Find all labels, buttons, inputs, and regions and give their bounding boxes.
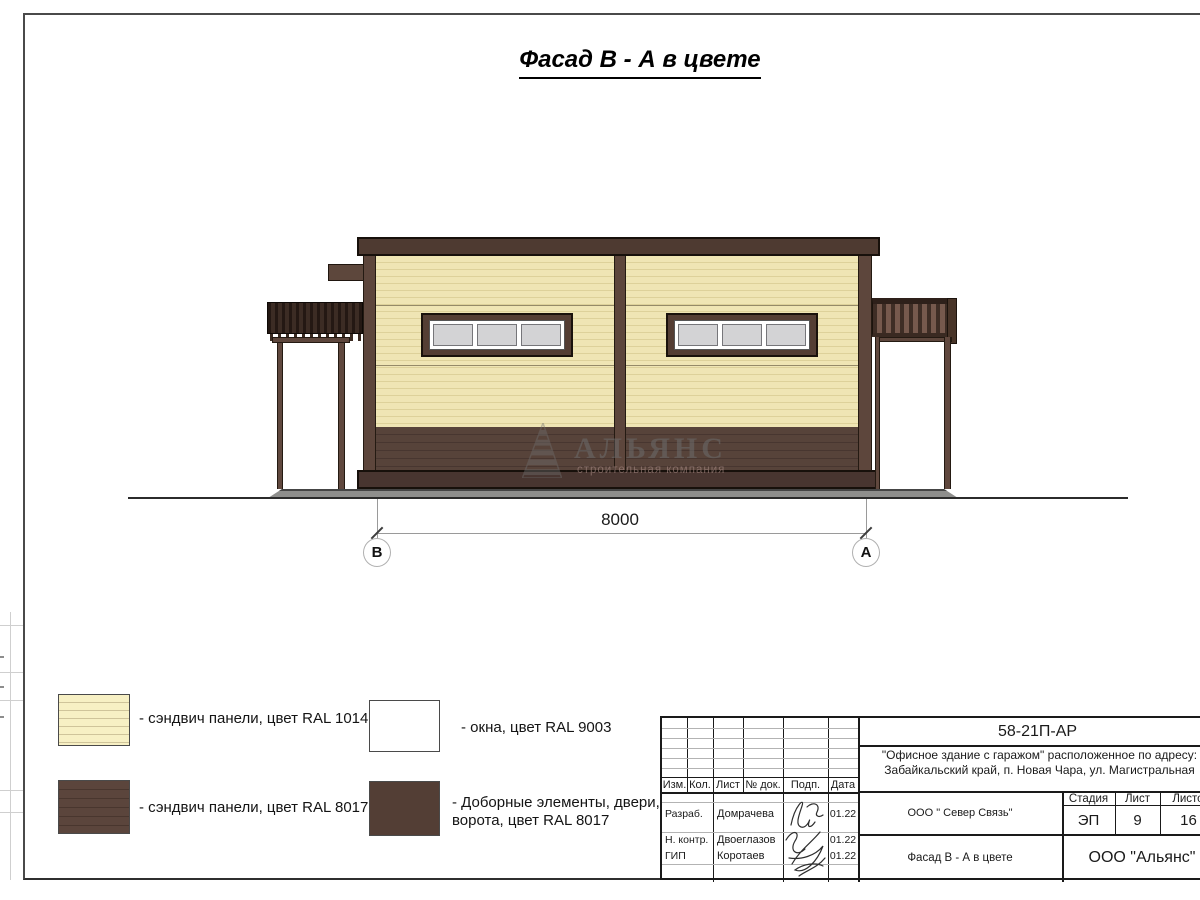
page-title: Фасад В - А в цвете	[350, 46, 930, 79]
tb-name: Домрачева	[717, 807, 783, 821]
project-address: "Офисное здание с гаражом" расположенное…	[862, 748, 1200, 778]
canopy-left-roof	[267, 302, 363, 334]
tb-role: Н. контр.	[665, 833, 713, 847]
corner-trim-left	[363, 256, 376, 470]
watermark-subtitle: строительная компания	[577, 464, 725, 476]
window-pane	[521, 324, 561, 346]
canopy-left-post	[277, 343, 283, 489]
tb-name: Двоеглазов	[717, 833, 783, 847]
canopy-right-beam	[875, 337, 952, 342]
tb-role: Разраб.	[665, 807, 713, 821]
legend-swatch-ral9003	[369, 700, 440, 752]
margin-line	[0, 700, 23, 701]
company-name: ООО "Альянс"	[1062, 834, 1200, 882]
stage-label: Стадия	[1062, 792, 1115, 805]
sheets-total: 16	[1160, 806, 1200, 834]
roof-fascia-overhang	[328, 264, 365, 281]
legend-swatch-ral8017	[58, 780, 130, 834]
legend-label: - окна, цвет RAL 9003	[461, 719, 611, 736]
window-left-frame	[429, 320, 565, 350]
margin-tick	[0, 686, 4, 688]
dimension-label: 8000	[560, 510, 680, 530]
tb-header-ndok: № док.	[743, 778, 783, 792]
sheets-label: Листов	[1160, 792, 1200, 805]
canopy-right-roof	[872, 298, 957, 337]
legend-label: - Доборные элементы, двери, ворота, цвет…	[452, 794, 660, 830]
watermark-title: АЛЬЯНС	[574, 432, 727, 466]
margin-line	[0, 790, 23, 791]
contractor-name: ООО " Север Связь"	[858, 791, 1062, 834]
sheet-label: Лист	[1115, 792, 1160, 805]
window-left	[421, 313, 573, 357]
margin-line	[0, 672, 23, 673]
window-pane	[678, 324, 718, 346]
window-pane	[722, 324, 762, 346]
canopy-right-post	[875, 337, 880, 489]
corner-trim-right	[858, 256, 872, 470]
doc-number: 58-21П-АР	[858, 720, 1200, 744]
window-pane	[433, 324, 473, 346]
project-address-line1: "Офисное здание с гаражом" расположенное…	[862, 748, 1200, 763]
legend-label-line2: ворота, цвет RAL 8017	[452, 812, 660, 830]
tb-role: ГИП	[665, 849, 713, 863]
window-pane	[766, 324, 806, 346]
axis-marker-a: А	[852, 538, 880, 567]
tb-date: 01.22	[828, 833, 858, 847]
tb-name: Коротаев	[717, 849, 783, 863]
axis-marker-a-label: А	[861, 544, 872, 561]
axis-marker-b: В	[363, 538, 391, 567]
margin-line	[0, 625, 23, 626]
tb-date: 01.22	[828, 807, 858, 821]
canopy-right-post	[944, 337, 951, 489]
margin-tick	[0, 716, 4, 718]
stage-value: ЭП	[1062, 806, 1115, 834]
legend-label-line1: - Доборные элементы, двери,	[452, 794, 660, 812]
legend-swatch-ral1014	[58, 694, 130, 746]
tb-header-izm: Изм.	[662, 778, 687, 792]
sheet-number: 9	[1115, 806, 1160, 834]
dimension-line	[377, 533, 866, 534]
drawing-title: Фасад В - А в цвете	[858, 834, 1062, 882]
tb-header-kol: Кол.	[687, 778, 713, 792]
window-pane	[477, 324, 517, 346]
tb-header-data: Дата	[828, 778, 858, 792]
window-right	[666, 313, 818, 357]
titleblock: Изм. Кол. Лист № док. Подп. Дата Разраб.…	[660, 716, 1200, 880]
axis-marker-b-label: В	[372, 544, 383, 561]
margin-line	[10, 612, 11, 880]
tb-header-list: Лист	[713, 778, 743, 792]
margin-tick	[0, 656, 4, 658]
legend-label: - сэндвич панели, цвет RAL 1014	[139, 710, 368, 727]
window-right-frame	[674, 320, 810, 350]
canopy-left-post	[338, 343, 345, 489]
legend-swatch-dark-elements	[369, 781, 440, 836]
tb-date: 01.22	[828, 849, 858, 863]
watermark-pyramid-logo	[522, 423, 562, 478]
tb-header-podp: Подп.	[783, 778, 828, 792]
signature-nkontr-gip	[781, 824, 828, 878]
page-title-text: Фасад В - А в цвете	[519, 46, 760, 79]
drawing-sheet: { "page_title": "Фасад В - А в цвете", "…	[0, 0, 1200, 900]
roof-band	[357, 237, 880, 256]
legend-label: - сэндвич панели, цвет RAL 8017	[139, 799, 368, 816]
project-address-line2: Забайкальский край, п. Новая Чара, ул. М…	[862, 763, 1200, 778]
margin-line	[0, 812, 23, 813]
ground-line	[128, 497, 1128, 499]
